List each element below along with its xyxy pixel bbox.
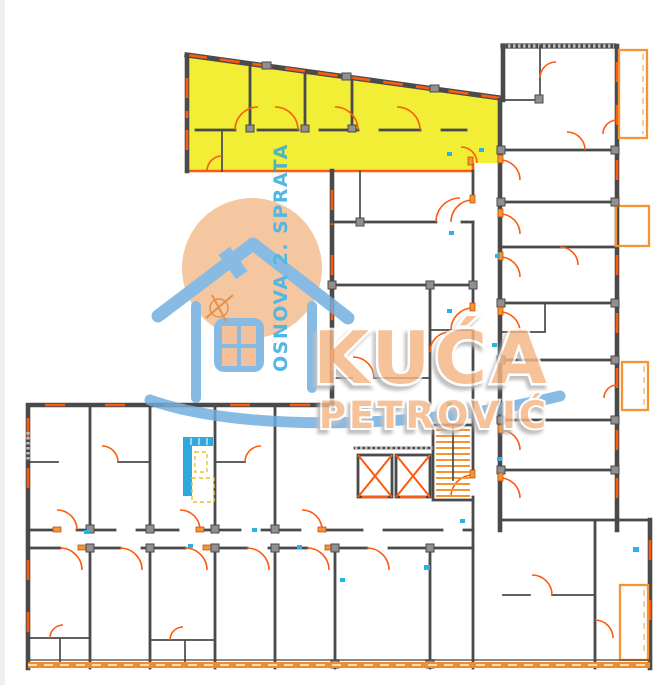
brand-word-petrovic: PETROVIĆ xyxy=(319,393,549,437)
plan-title: OSNOVA 2. SPRATA xyxy=(270,143,292,372)
kitchen-detail xyxy=(183,437,214,502)
highlighted-unit[interactable] xyxy=(187,55,500,171)
right-wing xyxy=(497,46,649,530)
watermark-circle xyxy=(182,198,322,338)
bottom-wing xyxy=(28,405,650,668)
floor-plan-drawing: OSNOVA 2. SPRATA KUĆA PETROVIĆ xyxy=(0,0,664,685)
brand-word-kuca: KUĆA xyxy=(313,316,551,400)
floor-plan-page: OSNOVA 2. SPRATA KUĆA PETROVIĆ xyxy=(0,0,664,685)
elevator-shafts xyxy=(355,448,433,497)
page-edge xyxy=(0,0,5,685)
